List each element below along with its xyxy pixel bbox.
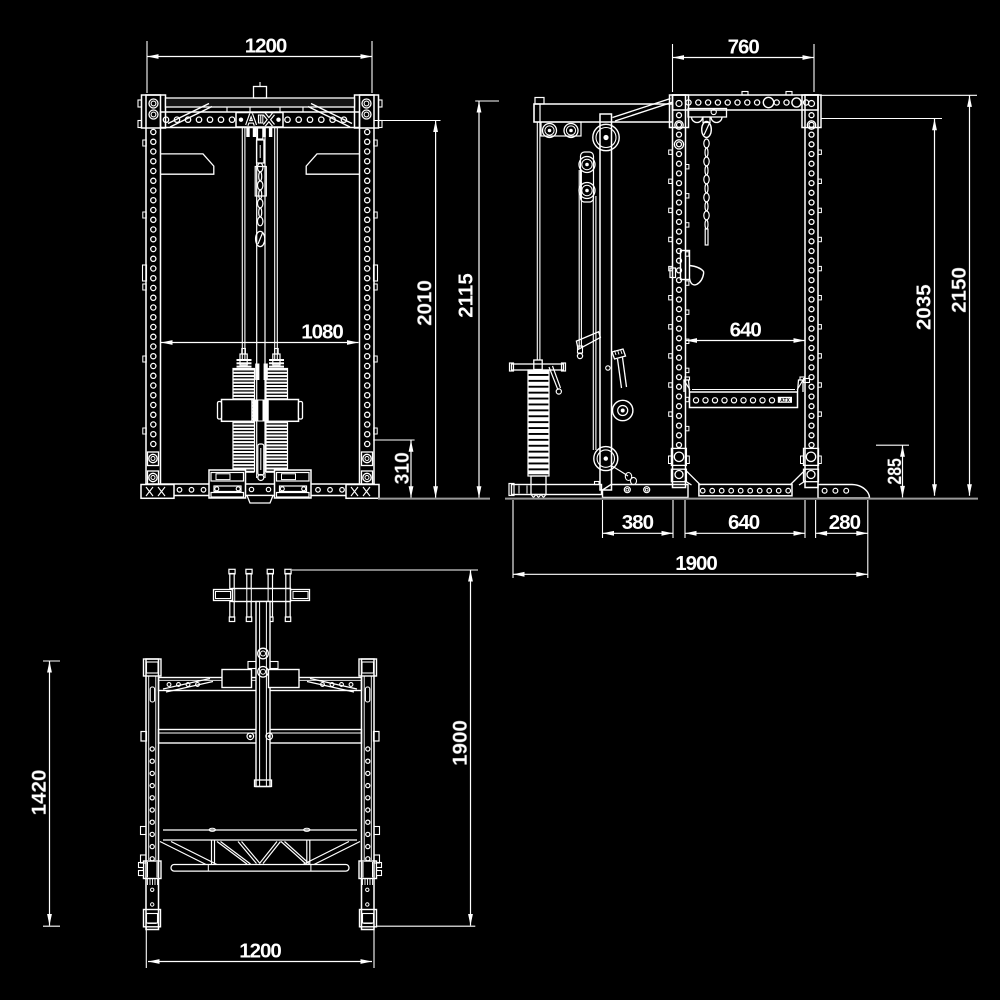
svg-text:760: 760: [728, 35, 760, 58]
svg-text:1900: 1900: [449, 720, 472, 766]
svg-text:285: 285: [884, 458, 906, 485]
svg-text:2115: 2115: [455, 273, 478, 317]
svg-text:1200: 1200: [239, 939, 281, 962]
svg-text:640: 640: [728, 511, 760, 534]
svg-text:1900: 1900: [675, 552, 717, 575]
svg-text:640: 640: [730, 318, 762, 341]
svg-text:1200: 1200: [245, 34, 287, 57]
svg-text:2010: 2010: [413, 280, 436, 326]
svg-text:2150: 2150: [948, 267, 971, 313]
svg-text:380: 380: [622, 511, 654, 534]
svg-text:ATX: ATX: [780, 398, 790, 404]
svg-text:1420: 1420: [28, 770, 51, 816]
svg-text:2035: 2035: [913, 284, 936, 330]
svg-text:1080: 1080: [301, 320, 343, 343]
svg-text:280: 280: [829, 511, 861, 534]
svg-text:310: 310: [391, 452, 414, 484]
